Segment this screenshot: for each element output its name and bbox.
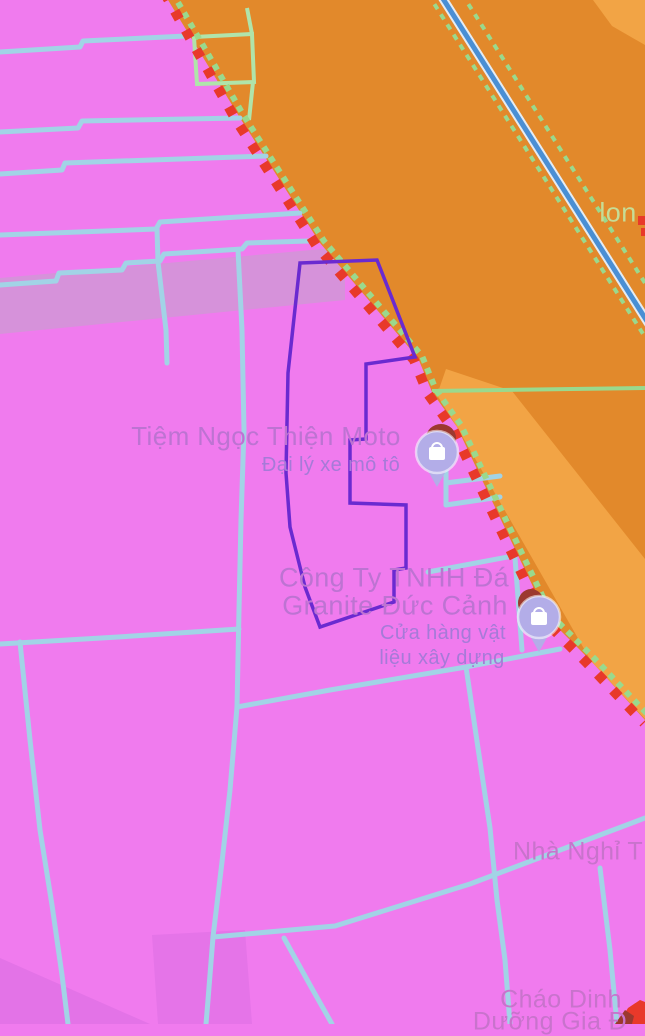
shopping-bag-icon (429, 447, 445, 460)
poi-label-granite-name-2[interactable]: Granite Đức Cảnh (282, 593, 508, 620)
poi-label-porridge-2[interactable]: Dưỡng Gia Đ (473, 1010, 627, 1035)
shade-patch (152, 930, 252, 1024)
poi-label-moto-name[interactable]: Tiệm Ngọc Thiện Moto (131, 423, 401, 449)
poi-label-granite-subtitle-2[interactable]: liệu xây dựng (379, 648, 504, 668)
poi-label-moto-subtitle[interactable]: Đại lý xe mô tô (262, 455, 400, 475)
map-canvas[interactable] (0, 0, 645, 1024)
map-viewport: { "colors": { "pink_zone": "#f07bee", "r… (0, 0, 645, 1024)
poi-label-guesthouse[interactable]: Nhà Nghỉ T (513, 840, 643, 865)
poi-label-granite-name-1[interactable]: Công Ty TNHH Đá (279, 565, 509, 592)
poi-label-granite-subtitle-1[interactable]: Cửa hàng vật (380, 623, 506, 643)
shopping-bag-icon (531, 612, 547, 625)
road-name-label: lon (599, 200, 636, 227)
